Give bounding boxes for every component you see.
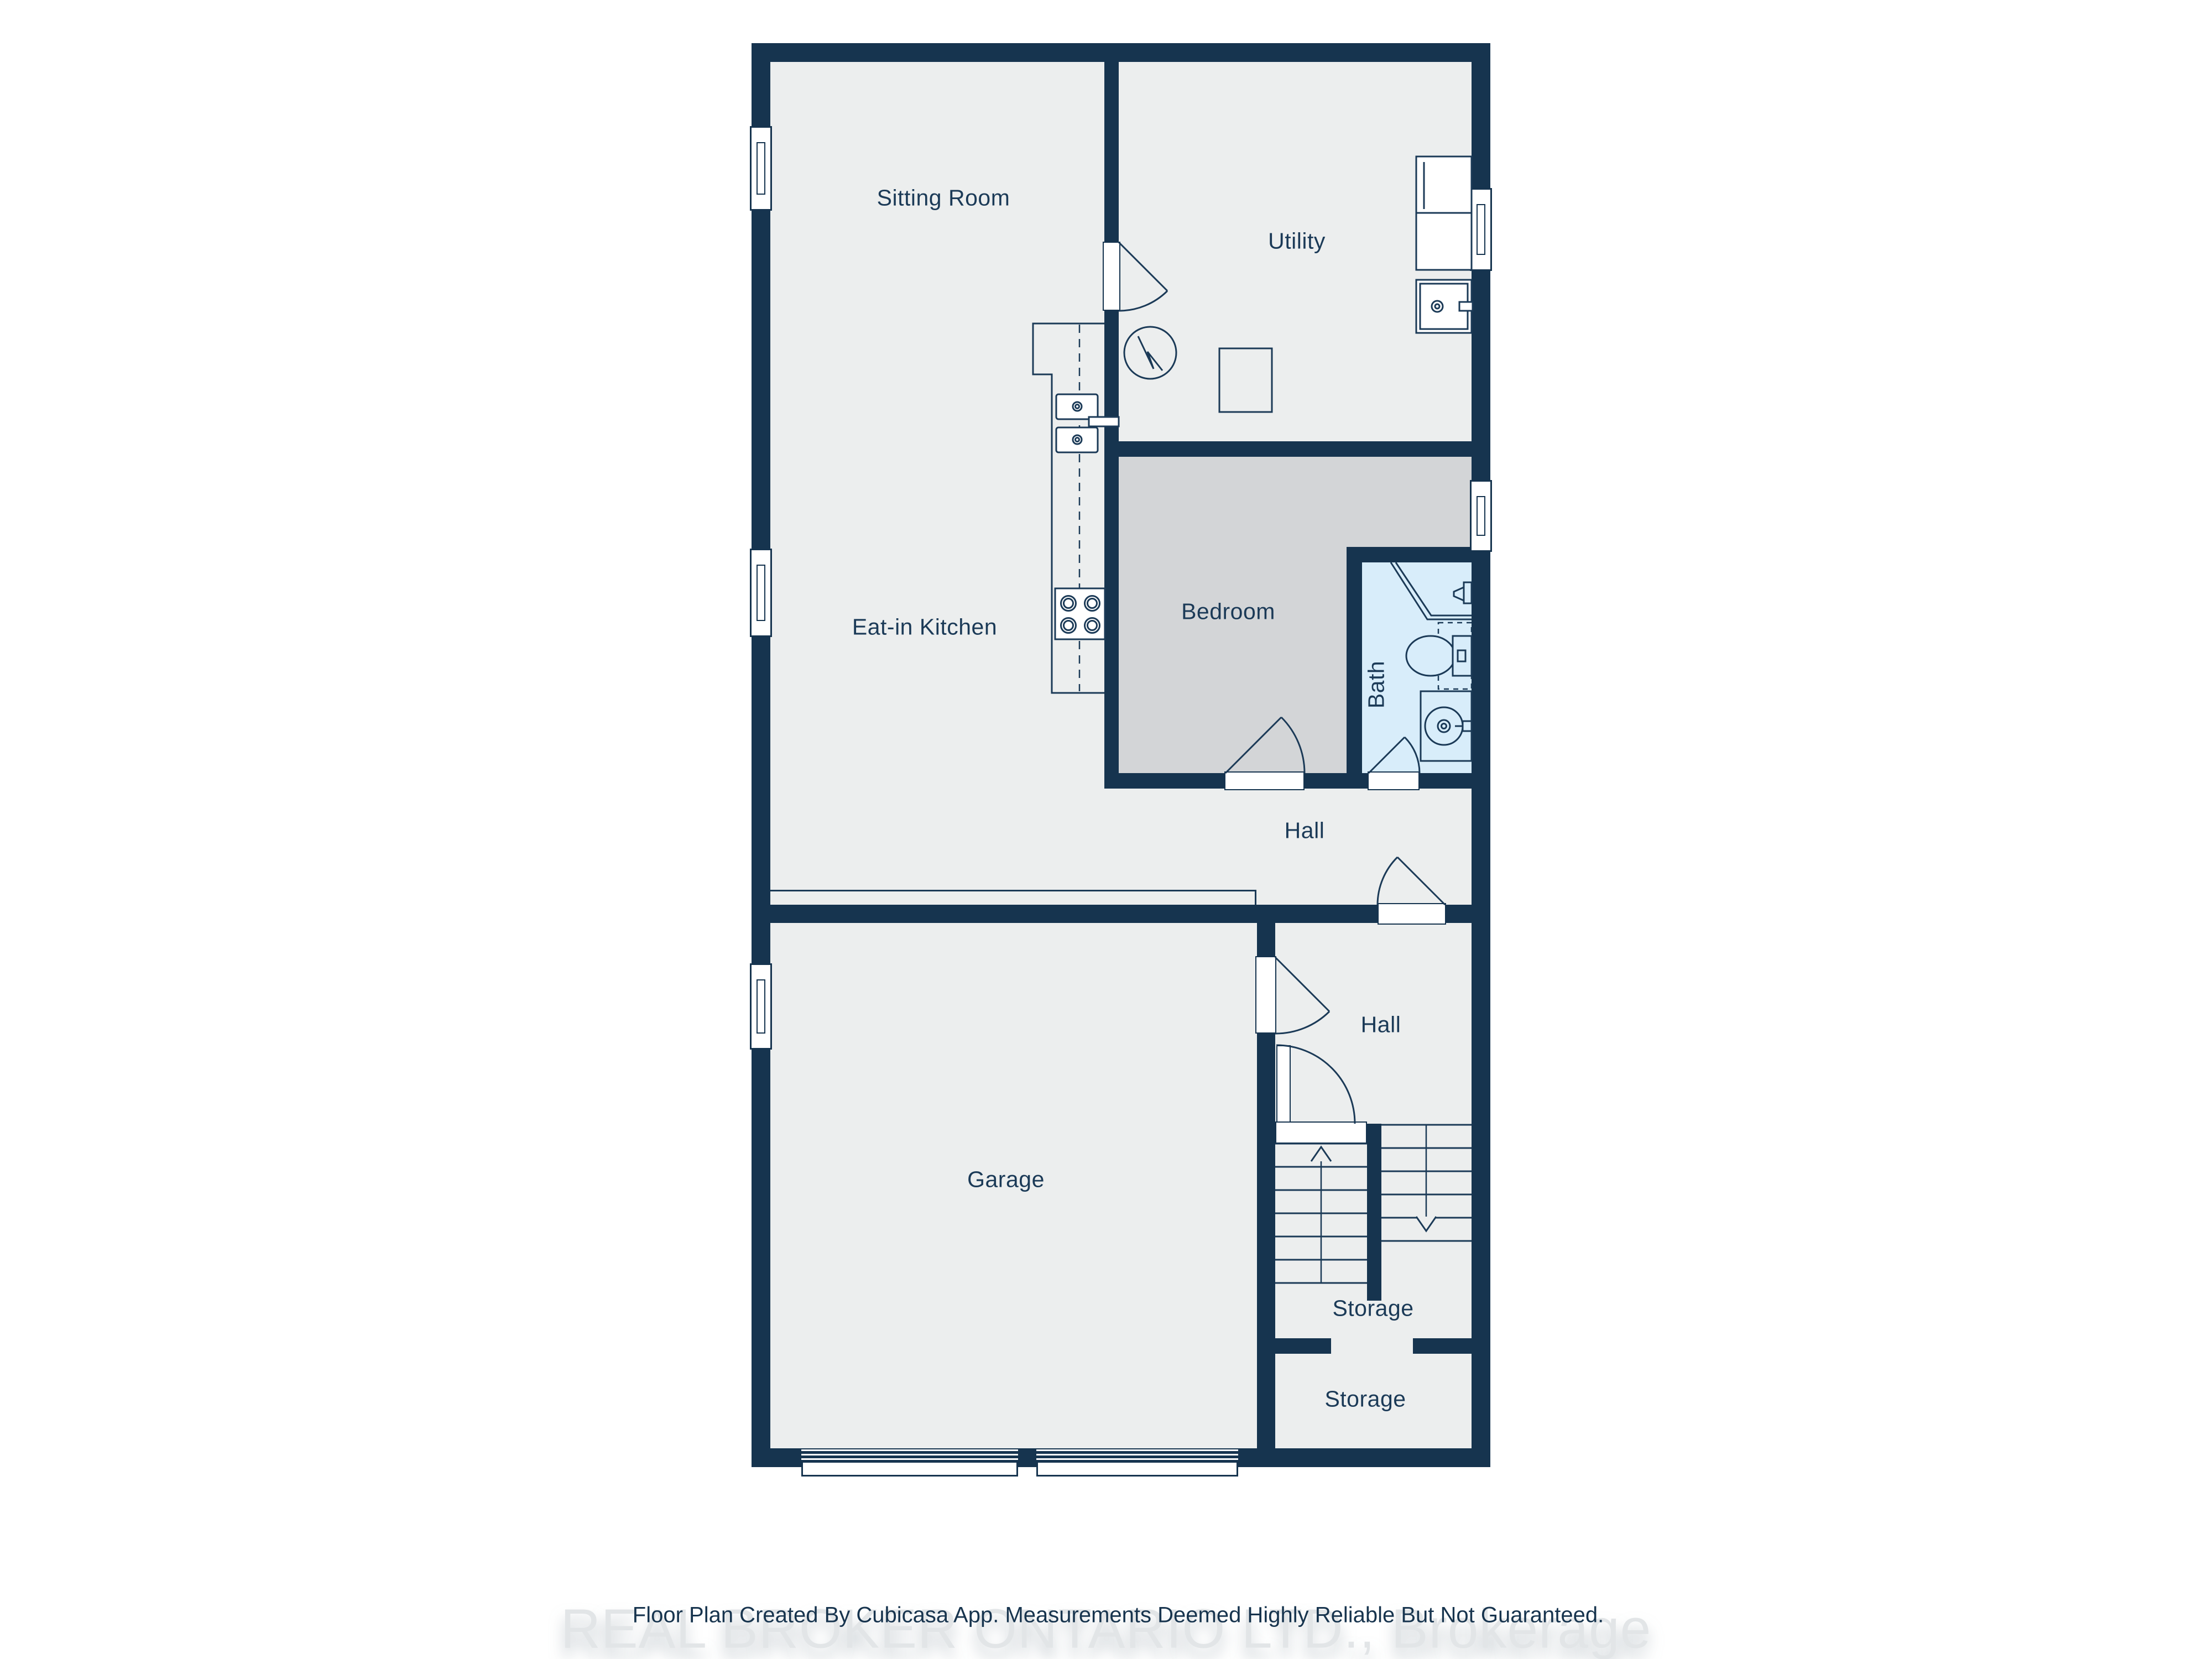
disclaimer-text: Floor Plan Created By Cubicasa App. Meas… xyxy=(633,1603,1604,1628)
wall-bath-left xyxy=(1347,547,1362,789)
room-label-garage: Garage xyxy=(967,1167,1045,1193)
door-sill-bath xyxy=(1368,771,1420,790)
door-sill-hall xyxy=(1378,903,1446,925)
room-label-storage-lower: Storage xyxy=(1324,1386,1406,1412)
room-label-bath: Bath xyxy=(1364,661,1390,708)
wall-stair-middle xyxy=(1367,1124,1381,1301)
door-sill-bedroom xyxy=(1224,771,1305,790)
wall-utility-bedroom xyxy=(1119,441,1472,457)
room-label-hall-upper: Hall xyxy=(1285,818,1325,844)
floor-plan: Sitting Room Utility Eat-in Kitchen Bedr… xyxy=(752,43,1490,1467)
window-pane xyxy=(757,565,765,621)
wall-exterior-top xyxy=(752,43,1490,62)
room-label-bedroom: Bedroom xyxy=(1181,599,1275,625)
window-garage-icon xyxy=(750,963,772,1050)
wall-exterior-left xyxy=(752,43,770,1467)
wall-sitting-utility xyxy=(1104,62,1119,789)
door-leaf-stairs xyxy=(1276,1045,1291,1123)
room-label-hall-lower: Hall xyxy=(1361,1012,1401,1038)
window-sitting-room-icon xyxy=(750,126,772,211)
wall-bath-top xyxy=(1347,547,1472,562)
window-utility-icon xyxy=(1470,188,1492,271)
room-label-storage-under-stairs: Storage xyxy=(1332,1296,1413,1322)
wall-hall-garage xyxy=(770,905,1472,923)
window-pane xyxy=(757,979,765,1034)
storage-opening xyxy=(1331,1336,1413,1356)
room-label-eat-in-kitchen: Eat-in Kitchen xyxy=(852,614,997,640)
garage-door-icon xyxy=(1036,1449,1238,1462)
window-bedroom-icon xyxy=(1470,480,1492,552)
window-kitchen-icon xyxy=(750,549,772,637)
garage-door-icon xyxy=(801,1449,1018,1462)
door-leaf-garage xyxy=(1255,956,1276,1034)
door-leaf-utility xyxy=(1103,242,1120,311)
room-label-sitting-room: Sitting Room xyxy=(877,185,1010,211)
window-pane xyxy=(1477,204,1485,255)
window-pane xyxy=(757,142,765,195)
door-sill-stairs xyxy=(1275,1121,1367,1144)
garage-door-panel xyxy=(1036,1461,1238,1477)
garage-door-panel xyxy=(801,1461,1018,1477)
floor-plan-page: Sitting Room Utility Eat-in Kitchen Bedr… xyxy=(0,0,2212,1659)
kitchen-counter-edge xyxy=(770,890,1256,905)
room-label-utility: Utility xyxy=(1268,228,1326,254)
window-pane xyxy=(1477,496,1485,536)
